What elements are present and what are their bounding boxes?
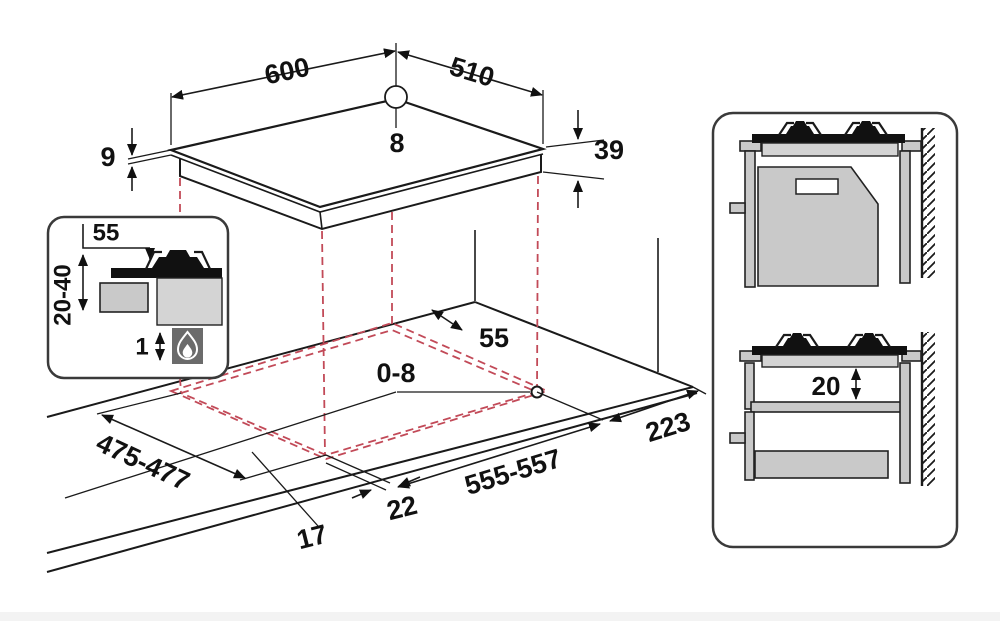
- inset-under-clearance-label: 20-40: [50, 264, 77, 325]
- clearance-inset-panel: 55 20-40 1: [48, 217, 228, 378]
- glass-thickness-label: 9: [100, 142, 115, 172]
- rear-clearance-label: 55: [479, 323, 509, 353]
- front-overhang-label: 17: [294, 519, 330, 555]
- rail-tab: [730, 433, 745, 443]
- hob-profile-band: [762, 143, 898, 156]
- hob-height-label: 39: [594, 135, 624, 165]
- hob-skirt-corner: [320, 212, 322, 229]
- inset-drawer-box: [100, 283, 148, 312]
- cabinet-rail-right: [900, 363, 910, 483]
- hob-skirt: [180, 155, 541, 229]
- side-view-oven: [730, 121, 935, 287]
- right-clearance-label: 223: [642, 406, 694, 448]
- gas-hole-icon: [385, 86, 407, 108]
- cabinet-rail-right: [900, 151, 910, 283]
- worktop-front-edge-bottom: [47, 393, 697, 572]
- cutout-depth-label: 475-477: [92, 427, 194, 496]
- cabinet-rail-left-lower: [745, 412, 754, 480]
- page-footer-strip: [0, 612, 1000, 621]
- diagram-svg: 600 510 8 9 39 55: [0, 0, 1000, 621]
- hob-glass-top: [171, 99, 543, 207]
- installation-diagram: 600 510 8 9 39 55: [0, 0, 1000, 621]
- inset-min-gap-label: 1: [135, 334, 148, 361]
- hob-profile-top: [752, 346, 907, 355]
- corner-radius-label: 0-8: [376, 358, 415, 388]
- shelf-board: [751, 402, 902, 412]
- hob-profile-top: [752, 134, 905, 143]
- side-view-shelf: 20: [730, 332, 935, 486]
- hole-diameter-label: 8: [389, 128, 404, 158]
- shelf-gap-label: 20: [812, 371, 841, 401]
- inset-side-clearance-label: 55: [93, 220, 120, 247]
- drawer-icon: [755, 451, 888, 478]
- inset-hob-body: [157, 278, 222, 325]
- cabinet-rail-left: [745, 151, 755, 287]
- hob-width-label: 600: [262, 52, 312, 91]
- hob-depth-label: 510: [446, 51, 498, 93]
- hob-dimensions: 600 510 8 9 39: [100, 51, 624, 208]
- oven-vent-icon: [796, 179, 838, 194]
- hob-profile-band: [762, 355, 898, 367]
- inset-hob-bar: [111, 268, 222, 278]
- side-view-panel: 20: [713, 113, 957, 547]
- rail-tab: [730, 203, 745, 213]
- side-overhang-label: 22: [384, 490, 420, 526]
